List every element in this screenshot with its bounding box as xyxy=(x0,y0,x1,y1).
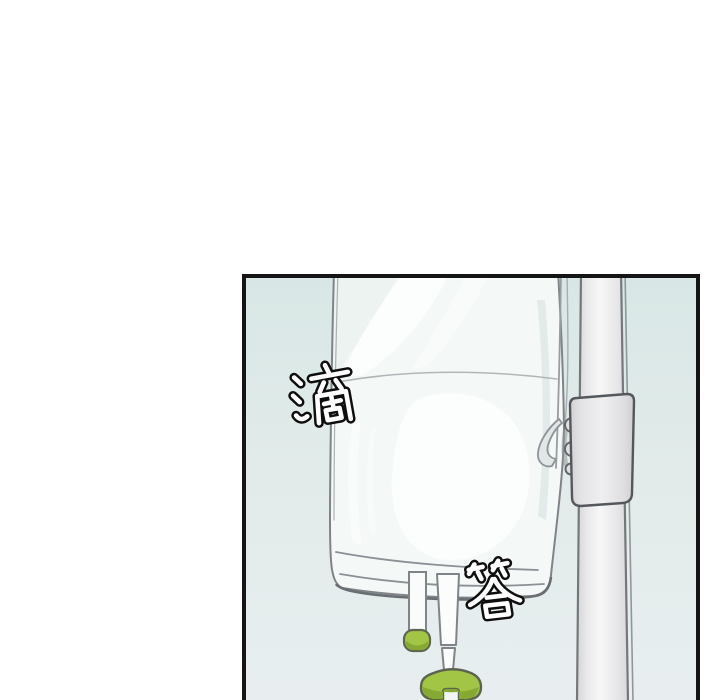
port-cap xyxy=(404,630,430,651)
comic-page: 滴 答 xyxy=(0,0,720,700)
roller-clamp xyxy=(421,669,481,700)
iv-bag xyxy=(330,270,568,600)
comic-panel-illustration xyxy=(0,0,720,700)
pole-clamp xyxy=(570,394,634,506)
